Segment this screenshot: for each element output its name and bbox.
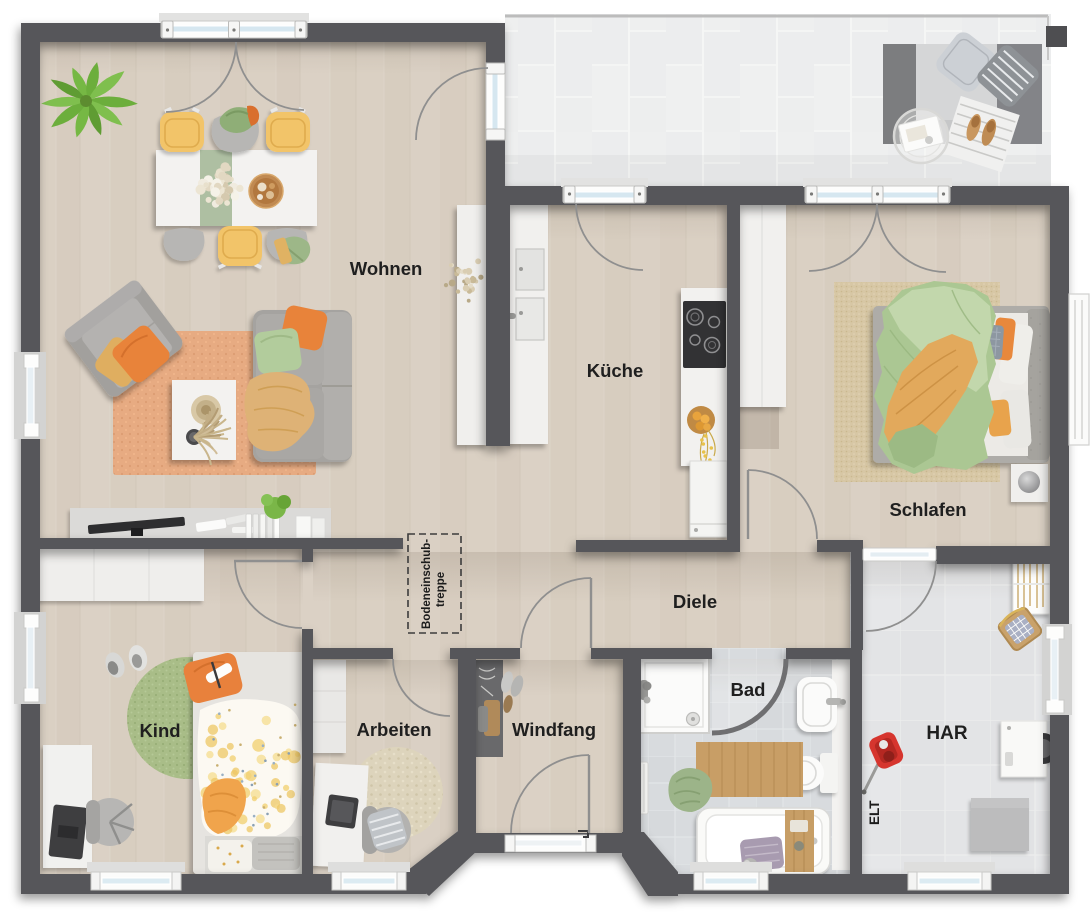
svg-text:Diele: Diele xyxy=(673,591,717,612)
svg-text:Bodeneinschub-: Bodeneinschub- xyxy=(421,539,433,629)
svg-text:ELT: ELT xyxy=(867,800,882,825)
svg-text:Wohnen: Wohnen xyxy=(350,258,423,279)
svg-text:Kind: Kind xyxy=(139,720,180,741)
svg-text:Küche: Küche xyxy=(587,360,644,381)
svg-text:Schlafen: Schlafen xyxy=(889,499,966,520)
svg-text:treppe: treppe xyxy=(435,572,447,607)
svg-text:Windfang: Windfang xyxy=(512,719,596,740)
svg-text:Bad: Bad xyxy=(731,679,766,700)
svg-text:HAR: HAR xyxy=(926,723,967,744)
svg-text:Arbeiten: Arbeiten xyxy=(356,719,431,740)
